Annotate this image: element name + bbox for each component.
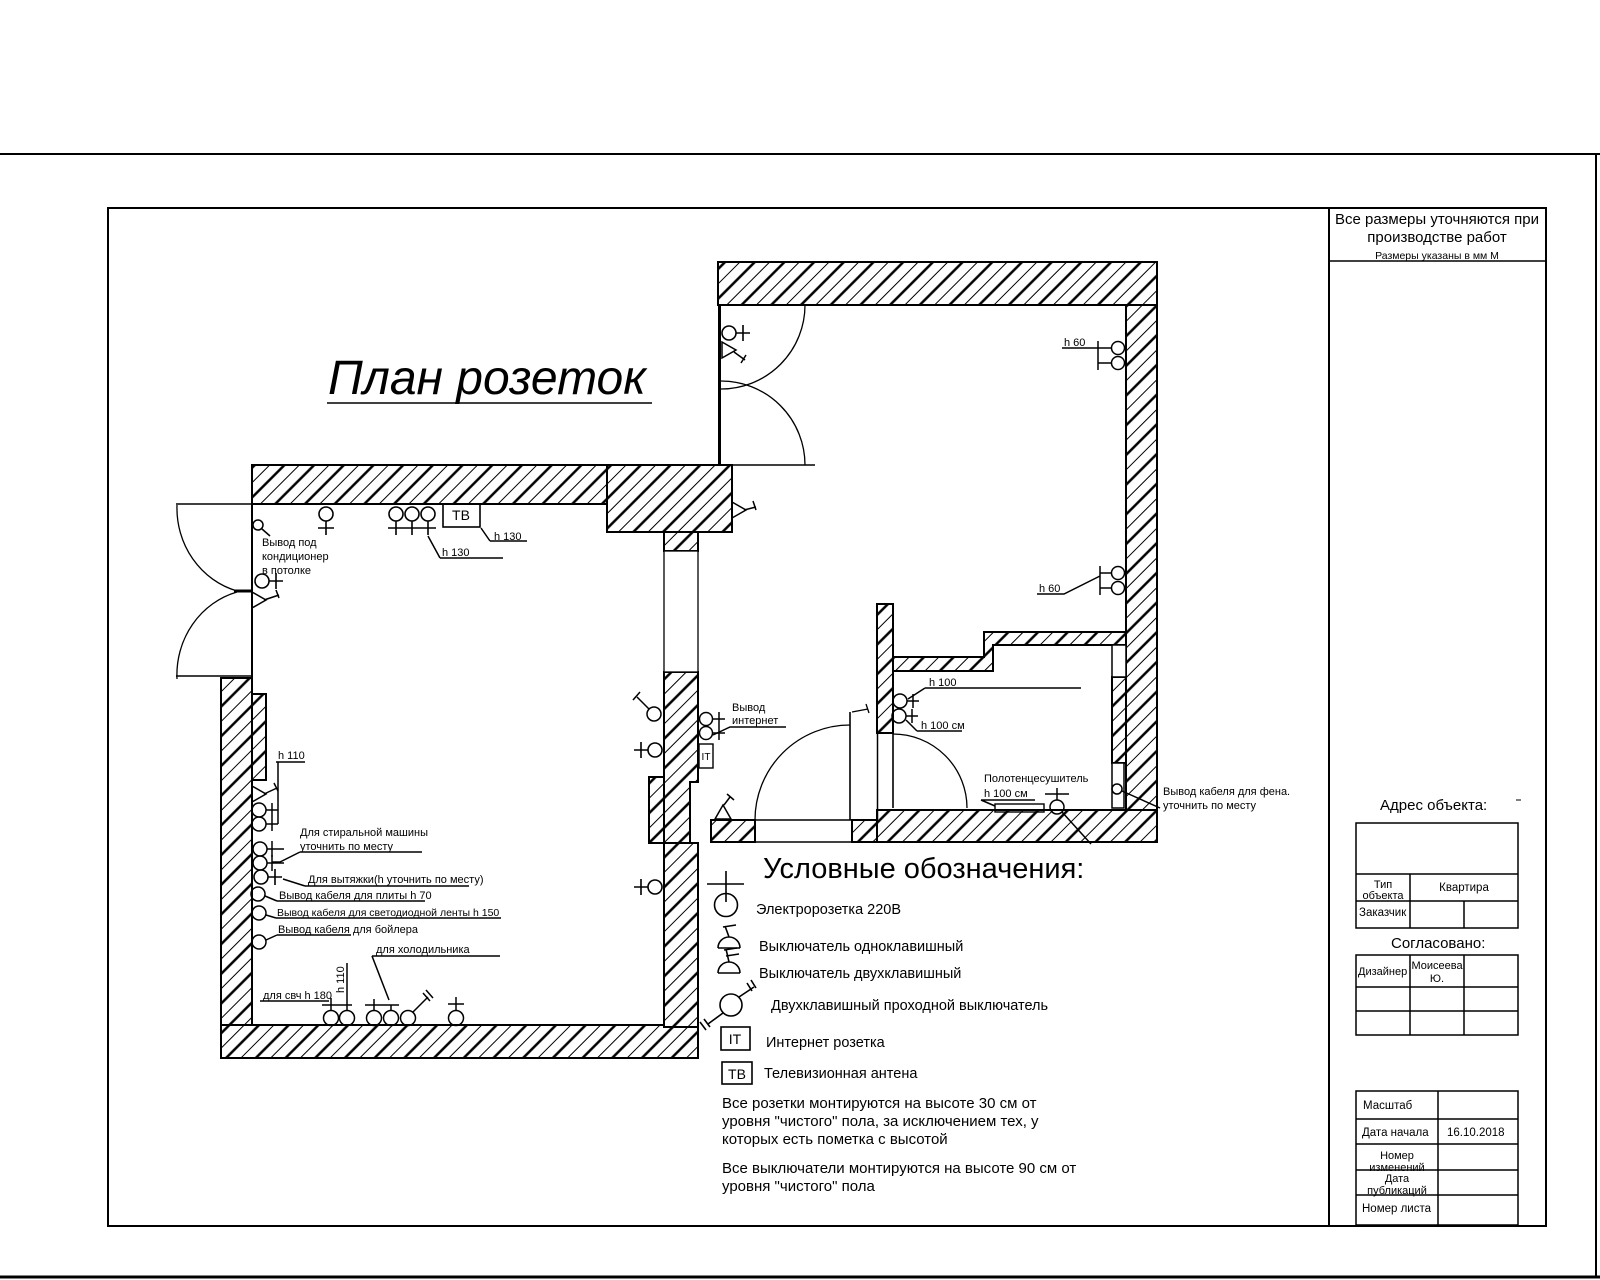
svg-text:Вывод кабеля для бойлера: Вывод кабеля для бойлера <box>278 924 419 936</box>
svg-text:уровня "чистого" пола: уровня "чистого" пола <box>722 1178 875 1195</box>
svg-text:16.10.2018: 16.10.2018 <box>1447 1127 1505 1139</box>
svg-text:h 130: h 130 <box>494 531 522 543</box>
svg-text:Все выключатели монтируются на: Все выключатели монтируются на высоте 90… <box>722 1160 1076 1177</box>
svg-text:Вывод: Вывод <box>732 702 766 714</box>
svg-text:Номер листа: Номер листа <box>1362 1203 1432 1215</box>
svg-text:Адрес объекта:: Адрес объекта: <box>1380 797 1487 814</box>
svg-text:Масштаб: Масштаб <box>1363 1100 1413 1112</box>
svg-text:h 130: h 130 <box>442 547 470 559</box>
svg-text:h 100 см: h 100 см <box>921 720 965 732</box>
svg-text:в потолке: в потолке <box>262 565 311 577</box>
svg-text:уровня "чистого" пола, за искл: уровня "чистого" пола, за исключением те… <box>722 1113 1039 1130</box>
svg-text:План розеток: План розеток <box>328 352 648 405</box>
svg-text:для свч h 180: для свч h 180 <box>263 990 332 1002</box>
svg-text:уточнить по месту: уточнить по месту <box>1163 800 1257 812</box>
svg-text:Электророзетка 220В: Электророзетка 220В <box>756 902 901 918</box>
svg-text:Выключатель одноклавишный: Выключатель одноклавишный <box>759 939 963 955</box>
svg-text:производстве работ: производстве работ <box>1367 229 1507 246</box>
svg-text:уточнить по месту: уточнить по месту <box>300 841 394 853</box>
svg-text:Вывод кабеля для светодиодной: Вывод кабеля для светодиодной ленты h 15… <box>277 907 499 919</box>
svg-text:кондиционер: кондиционер <box>262 551 329 563</box>
svg-text:ТВ: ТВ <box>452 507 470 523</box>
svg-text:Условные обозначения:: Условные обозначения: <box>763 853 1084 885</box>
svg-text:h 100 см: h 100 см <box>984 788 1028 800</box>
svg-text:интернет: интернет <box>732 715 778 727</box>
svg-text:h 110: h 110 <box>278 750 305 762</box>
svg-text:Заказчик: Заказчик <box>1359 907 1407 919</box>
svg-text:для холодильника: для холодильника <box>376 944 471 956</box>
svg-text:Интернет розетка: Интернет розетка <box>766 1035 886 1051</box>
svg-text:Для вытяжки(h уточнить по мест: Для вытяжки(h уточнить по месту) <box>308 874 483 886</box>
svg-text:Дата начала: Дата начала <box>1362 1127 1429 1139</box>
svg-text:Номер: Номер <box>1380 1150 1414 1162</box>
svg-text:Дата: Дата <box>1385 1173 1410 1185</box>
svg-text:публикаций: публикаций <box>1367 1185 1427 1197</box>
svg-text:Размеры указаны в мм М: Размеры указаны в мм М <box>1375 250 1499 262</box>
svg-text:h 60: h 60 <box>1064 337 1085 349</box>
svg-text:Вывод под: Вывод под <box>262 537 317 549</box>
svg-text:Телевизионная антена: Телевизионная антена <box>764 1066 918 1082</box>
svg-text:Полотенцесушитель: Полотенцесушитель <box>984 773 1089 785</box>
svg-text:h 110: h 110 <box>335 966 347 993</box>
svg-text:Для стиральной машины: Для стиральной машины <box>300 827 428 839</box>
svg-text:Все размеры уточняются при: Все размеры уточняются при <box>1335 211 1539 228</box>
svg-text:Моисеева: Моисеева <box>1411 960 1463 972</box>
svg-text:Выключатель двухклавишный: Выключатель двухклавишный <box>759 966 961 982</box>
svg-text:Ю.: Ю. <box>1430 973 1444 985</box>
svg-text:h 100: h 100 <box>929 677 957 689</box>
svg-text:Двухклавишный проходной выключ: Двухклавишный проходной выключатель <box>771 998 1048 1014</box>
svg-text:которых есть пометка с высотой: которых есть пометка с высотой <box>722 1131 948 1148</box>
svg-text:IT: IT <box>702 752 711 763</box>
svg-text:Вывод кабеля для фена.: Вывод кабеля для фена. <box>1163 786 1290 798</box>
svg-text:объекта: объекта <box>1362 890 1404 902</box>
svg-text:ТВ: ТВ <box>728 1066 746 1082</box>
svg-text:Квартира: Квартира <box>1439 882 1489 894</box>
svg-text:Дизайнер: Дизайнер <box>1358 966 1407 978</box>
svg-text:Все розетки монтируются на выс: Все розетки монтируются на высоте 30 см … <box>722 1095 1037 1112</box>
svg-text:h 60: h 60 <box>1039 583 1060 595</box>
svg-text:Согласовано:: Согласовано: <box>1391 935 1485 952</box>
svg-text:IT: IT <box>729 1031 742 1047</box>
svg-text:Вывод кабеля для плиты h 70: Вывод кабеля для плиты h 70 <box>279 890 432 902</box>
